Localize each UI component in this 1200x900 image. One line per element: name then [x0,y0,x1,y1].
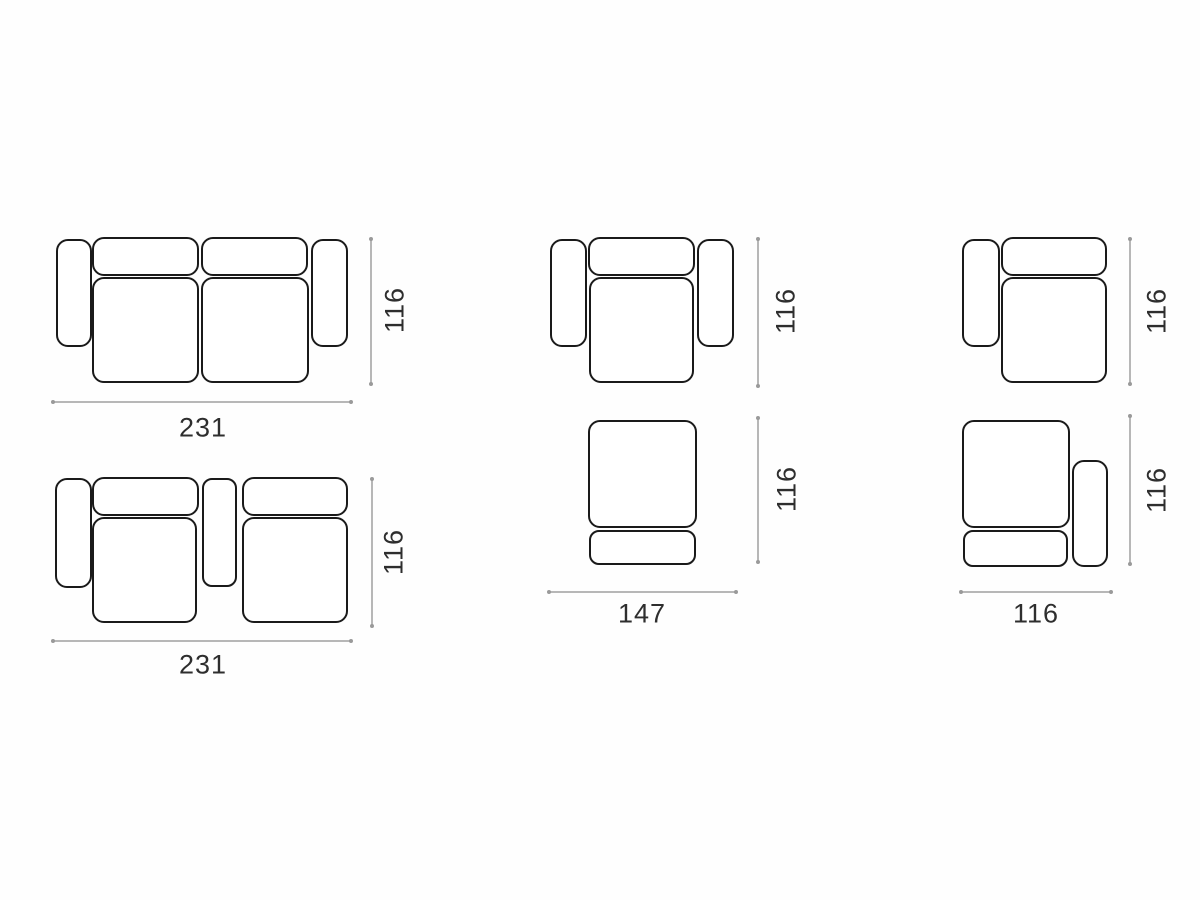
height-dimension-line [371,478,373,627]
height-dimension-line [1129,415,1131,565]
backrest-outline [242,477,348,516]
seat-outline [92,517,197,623]
seat-outline [962,420,1070,528]
height-dimension-label: 116 [1142,467,1173,513]
seat-outline [589,277,694,383]
left-armrest-outline [962,239,1000,347]
backrest-outline [1001,237,1107,276]
width-dimension-line [960,591,1112,593]
backrest-outline [92,477,199,516]
seat-outline [201,277,309,383]
left-armrest-outline [55,478,92,588]
right-armrest-outline [311,239,348,347]
height-dimension-label: 116 [771,288,802,334]
left-armrest-outline [550,239,587,347]
width-dimension-label: 116 [1013,599,1059,630]
seat-outline [588,420,697,528]
height-dimension-line [1129,238,1131,385]
width-dimension-label: 231 [179,650,227,681]
left-armrest-outline [56,239,92,347]
seat-outline [242,517,348,623]
height-dimension-label: 116 [1142,288,1173,334]
height-dimension-line [757,417,759,563]
front-edge-outline [589,530,696,565]
width-dimension-label: 231 [179,413,227,444]
height-dimension-label: 116 [379,529,410,575]
seat-outline [1001,277,1107,383]
height-dimension-line [757,238,759,387]
console-outline [202,478,237,587]
backrest-outline [588,237,695,276]
width-dimension-line [548,591,737,593]
front-edge-outline [963,530,1068,567]
right-armrest-outline [697,239,734,347]
backrest-outline [92,237,199,276]
width-dimension-label: 147 [618,599,666,630]
seat-outline [92,277,199,383]
height-dimension-label: 116 [380,287,411,333]
right-armrest-outline [1072,460,1108,567]
backrest-outline [201,237,308,276]
height-dimension-line [370,238,372,385]
height-dimension-label: 116 [772,466,803,512]
width-dimension-line [52,640,352,642]
dimension-diagram: 116 231 116 116 116 231 116 [0,0,1200,900]
width-dimension-line [52,401,352,403]
